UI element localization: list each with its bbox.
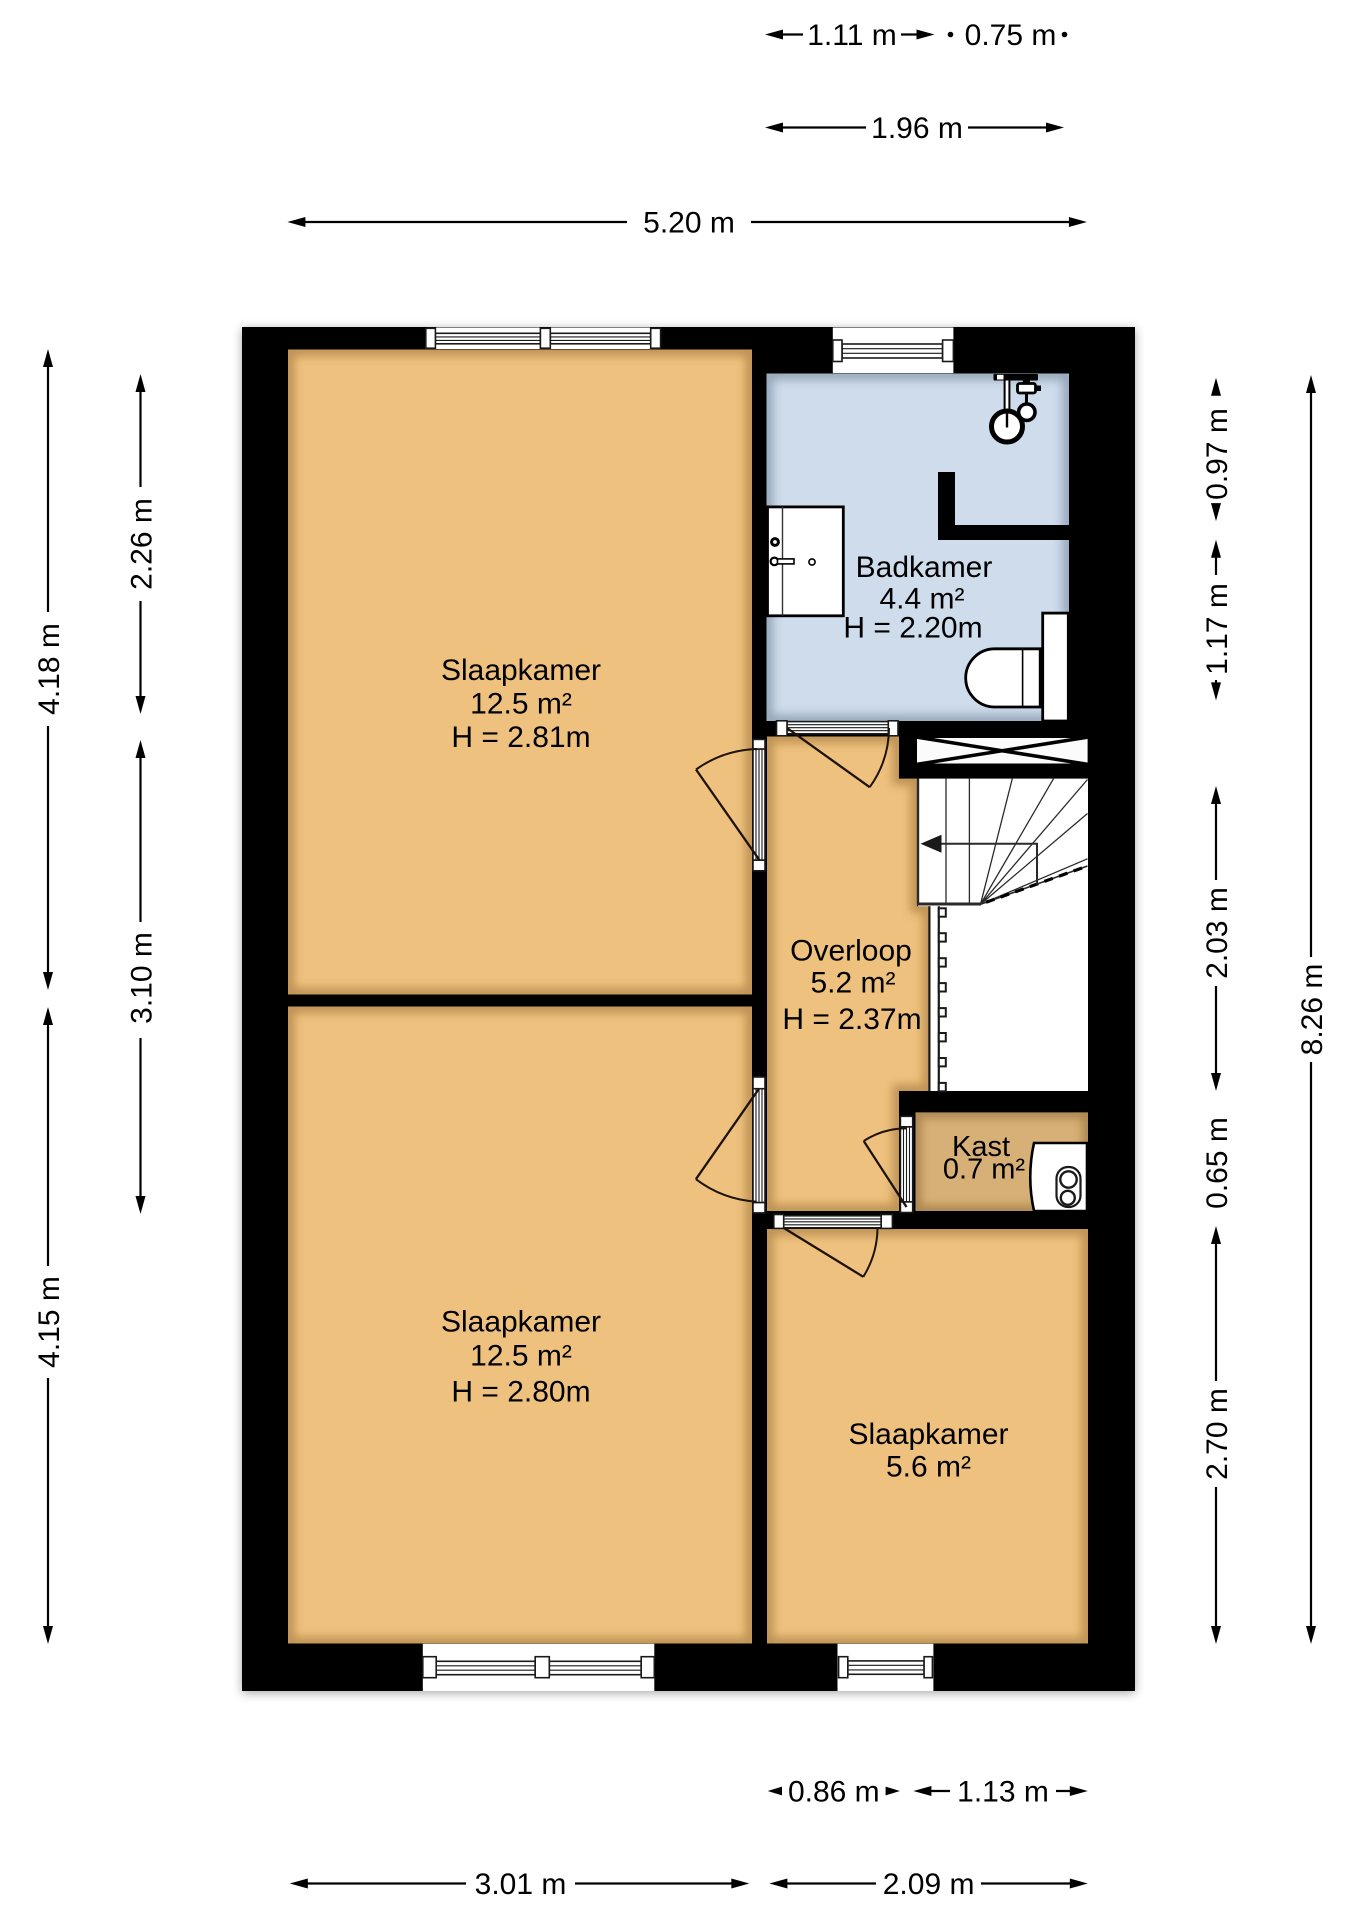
svg-text:4.18 m: 4.18 m — [33, 623, 66, 715]
svg-text:0.7 m²: 0.7 m² — [943, 1153, 1026, 1185]
svg-text:8.26 m: 8.26 m — [1296, 964, 1329, 1056]
svg-text:1.11 m: 1.11 m — [807, 19, 897, 52]
svg-text:Slaapkamer: Slaapkamer — [848, 1418, 1008, 1451]
svg-text:4.15 m: 4.15 m — [33, 1276, 66, 1368]
svg-text:0.65 m: 0.65 m — [1201, 1117, 1234, 1209]
svg-text:0.86 m: 0.86 m — [788, 1776, 880, 1809]
svg-text:3.01 m: 3.01 m — [475, 1868, 567, 1901]
svg-text:1.13 m: 1.13 m — [957, 1776, 1049, 1809]
svg-text:Badkamer: Badkamer — [856, 551, 993, 584]
svg-text:0.75 m: 0.75 m — [965, 19, 1057, 52]
svg-text:Slaapkamer: Slaapkamer — [441, 654, 601, 687]
svg-text:Overloop: Overloop — [790, 935, 912, 968]
svg-text:2.70 m: 2.70 m — [1201, 1388, 1234, 1480]
svg-text:0.97 m: 0.97 m — [1201, 408, 1234, 500]
svg-text:1.17 m: 1.17 m — [1201, 583, 1234, 675]
svg-text:Slaapkamer: Slaapkamer — [441, 1306, 601, 1339]
svg-text:5.2 m²: 5.2 m² — [810, 967, 895, 1000]
svg-text:2.09 m: 2.09 m — [883, 1868, 975, 1901]
svg-text:H = 2.80m: H = 2.80m — [451, 1376, 590, 1409]
svg-text:2.03 m: 2.03 m — [1201, 887, 1234, 979]
svg-text:H = 2.20m: H = 2.20m — [843, 612, 982, 645]
svg-text:12.5 m²: 12.5 m² — [470, 1339, 572, 1372]
svg-text:2.26 m: 2.26 m — [125, 498, 158, 590]
svg-text:H = 2.81m: H = 2.81m — [451, 721, 590, 754]
svg-text:5.20 m: 5.20 m — [643, 207, 735, 240]
svg-text:H = 2.37m: H = 2.37m — [782, 1003, 921, 1036]
svg-text:5.6 m²: 5.6 m² — [886, 1450, 971, 1483]
svg-text:3.10 m: 3.10 m — [125, 932, 158, 1024]
svg-text:12.5 m²: 12.5 m² — [470, 688, 572, 721]
svg-text:1.96 m: 1.96 m — [871, 112, 963, 145]
